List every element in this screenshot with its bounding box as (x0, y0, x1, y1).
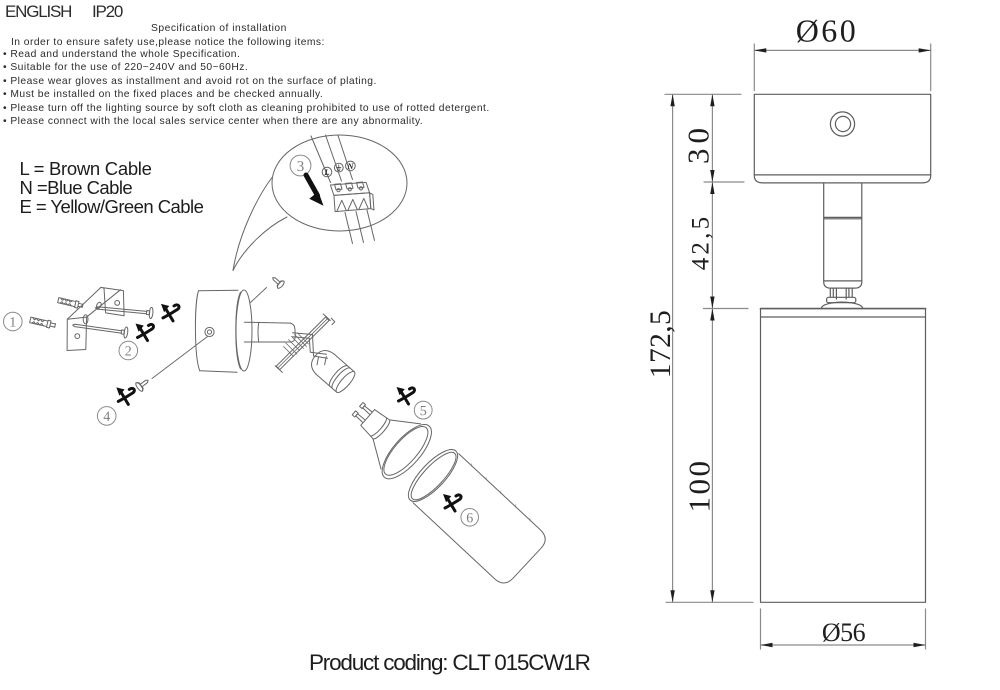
svg-text:30: 30 (681, 123, 716, 164)
svg-text:42,5: 42,5 (688, 214, 715, 271)
svg-text:2: 2 (125, 344, 132, 359)
svg-text:3: 3 (297, 159, 305, 175)
svg-text:1: 1 (9, 315, 16, 330)
svg-text:N: N (346, 161, 354, 171)
svg-text:100: 100 (682, 459, 717, 513)
svg-text:172,5: 172,5 (645, 310, 677, 378)
svg-text:4: 4 (103, 410, 110, 425)
svg-text:6: 6 (466, 511, 473, 526)
svg-text:Ø56: Ø56 (822, 618, 866, 647)
svg-text:Ø60: Ø60 (796, 12, 859, 48)
svg-text:L: L (323, 167, 329, 177)
svg-text:5: 5 (420, 404, 427, 419)
